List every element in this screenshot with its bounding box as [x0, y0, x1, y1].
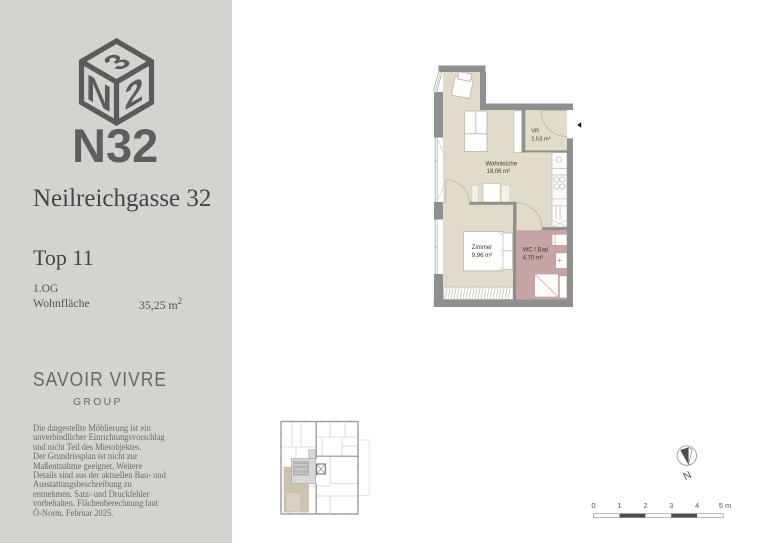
svg-text:5 m: 5 m: [719, 501, 732, 510]
svg-text:Wohnküche: Wohnküche: [486, 162, 518, 168]
svg-text:N: N: [681, 469, 693, 483]
svg-text:0: 0: [591, 501, 595, 510]
svg-text:2: 2: [643, 501, 647, 510]
svg-text:9,96 m²: 9,96 m²: [472, 253, 492, 259]
svg-text:4: 4: [695, 501, 699, 510]
svg-text:18,06 m²: 18,06 m²: [487, 169, 511, 175]
svg-text:VR: VR: [531, 129, 539, 135]
svg-text:3: 3: [669, 501, 673, 510]
svg-text:2,53 m²: 2,53 m²: [531, 137, 550, 143]
svg-text:WC / Bad: WC / Bad: [523, 248, 549, 254]
svg-text:4,70 m²: 4,70 m²: [523, 256, 543, 262]
svg-text:Zimmer: Zimmer: [472, 245, 492, 251]
svg-text:1: 1: [617, 501, 621, 510]
